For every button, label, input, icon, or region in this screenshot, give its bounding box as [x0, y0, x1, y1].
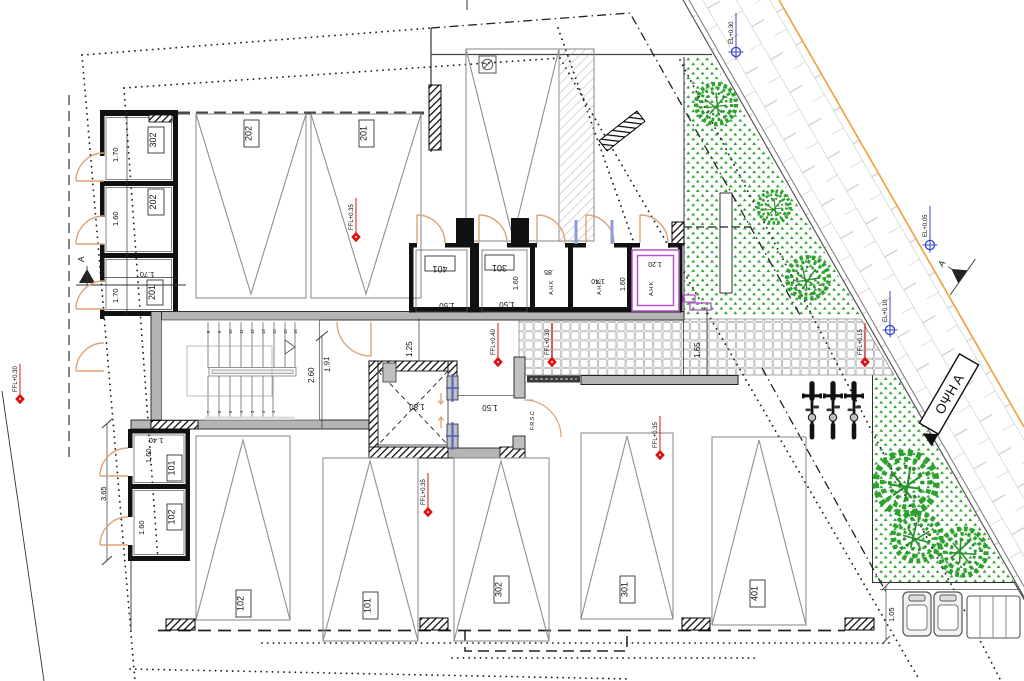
svg-text:1.25: 1.25 — [405, 341, 414, 357]
svg-text:202: 202 — [244, 126, 254, 141]
svg-text:1.91: 1.91 — [322, 356, 332, 372]
svg-text:10: 10 — [228, 329, 233, 334]
svg-text:13: 13 — [261, 329, 266, 334]
svg-text:1.05: 1.05 — [887, 607, 896, 622]
svg-text:FFL+0.40: FFL+0.40 — [491, 328, 497, 355]
svg-text:14: 14 — [272, 329, 277, 334]
svg-text:102: 102 — [236, 596, 246, 611]
svg-text:302: 302 — [148, 132, 158, 147]
svg-text:EL+0.30: EL+0.30 — [729, 21, 735, 44]
svg-text:FFL+0.35: FFL+0.35 — [349, 203, 355, 230]
svg-text:12: 12 — [250, 329, 255, 334]
svg-text:16: 16 — [293, 329, 298, 334]
svg-text:1.80: 1.80 — [409, 402, 425, 411]
svg-text:FFL+0.30: FFL+0.30 — [545, 328, 551, 355]
svg-text:301: 301 — [492, 263, 507, 273]
svg-text:.85: .85 — [544, 268, 554, 275]
svg-text:2.60: 2.60 — [307, 367, 316, 383]
svg-text:1.70: 1.70 — [111, 147, 120, 162]
svg-text:FFL+0.15: FFL+0.15 — [858, 328, 864, 355]
svg-text:401: 401 — [432, 264, 447, 274]
svg-text:EL+0.05: EL+0.05 — [923, 214, 929, 237]
svg-text:401: 401 — [750, 586, 760, 601]
svg-text:1.50: 1.50 — [499, 300, 515, 309]
svg-text:101: 101 — [167, 460, 177, 475]
svg-text:1.60: 1.60 — [513, 276, 520, 290]
svg-text:15: 15 — [283, 329, 288, 334]
svg-text:FFL+0.35: FFL+0.35 — [653, 421, 659, 448]
svg-text:FFL+0.35: FFL+0.35 — [421, 478, 427, 505]
svg-text:11: 11 — [239, 329, 244, 334]
svg-text:102: 102 — [167, 509, 177, 524]
svg-text:A.H.K: A.H.K — [549, 280, 555, 295]
svg-text:101: 101 — [363, 598, 373, 613]
svg-text:1.70: 1.70 — [111, 288, 120, 303]
svg-text:EL+0.10: EL+0.10 — [883, 299, 889, 322]
svg-text:FFL+0.30: FFL+0.30 — [13, 365, 19, 392]
svg-text:201: 201 — [359, 126, 369, 141]
svg-text:F.R.S.C: F.R.S.C — [530, 411, 536, 430]
svg-text:1.65: 1.65 — [693, 342, 702, 358]
svg-text:1.70: 1.70 — [140, 270, 155, 279]
svg-text:1.60: 1.60 — [137, 520, 146, 535]
svg-text:1.50: 1.50 — [482, 403, 498, 412]
svg-text:A: A — [76, 256, 86, 262]
svg-text:1.60: 1.60 — [111, 211, 120, 226]
svg-text:301: 301 — [620, 582, 630, 597]
svg-text:1.50: 1.50 — [439, 301, 455, 310]
svg-text:201: 201 — [147, 285, 157, 300]
svg-text:A.H.K: A.H.K — [649, 281, 655, 296]
svg-text:302: 302 — [494, 582, 504, 597]
svg-text:1.20: 1.20 — [648, 260, 662, 267]
svg-text:3.65: 3.65 — [99, 486, 108, 501]
svg-text:A.H.K: A.H.K — [597, 280, 603, 295]
svg-text:1.40: 1.40 — [149, 436, 164, 445]
svg-text:1.60: 1.60 — [620, 277, 627, 291]
svg-text:1.60: 1.60 — [144, 448, 153, 463]
svg-text:202: 202 — [148, 194, 158, 209]
